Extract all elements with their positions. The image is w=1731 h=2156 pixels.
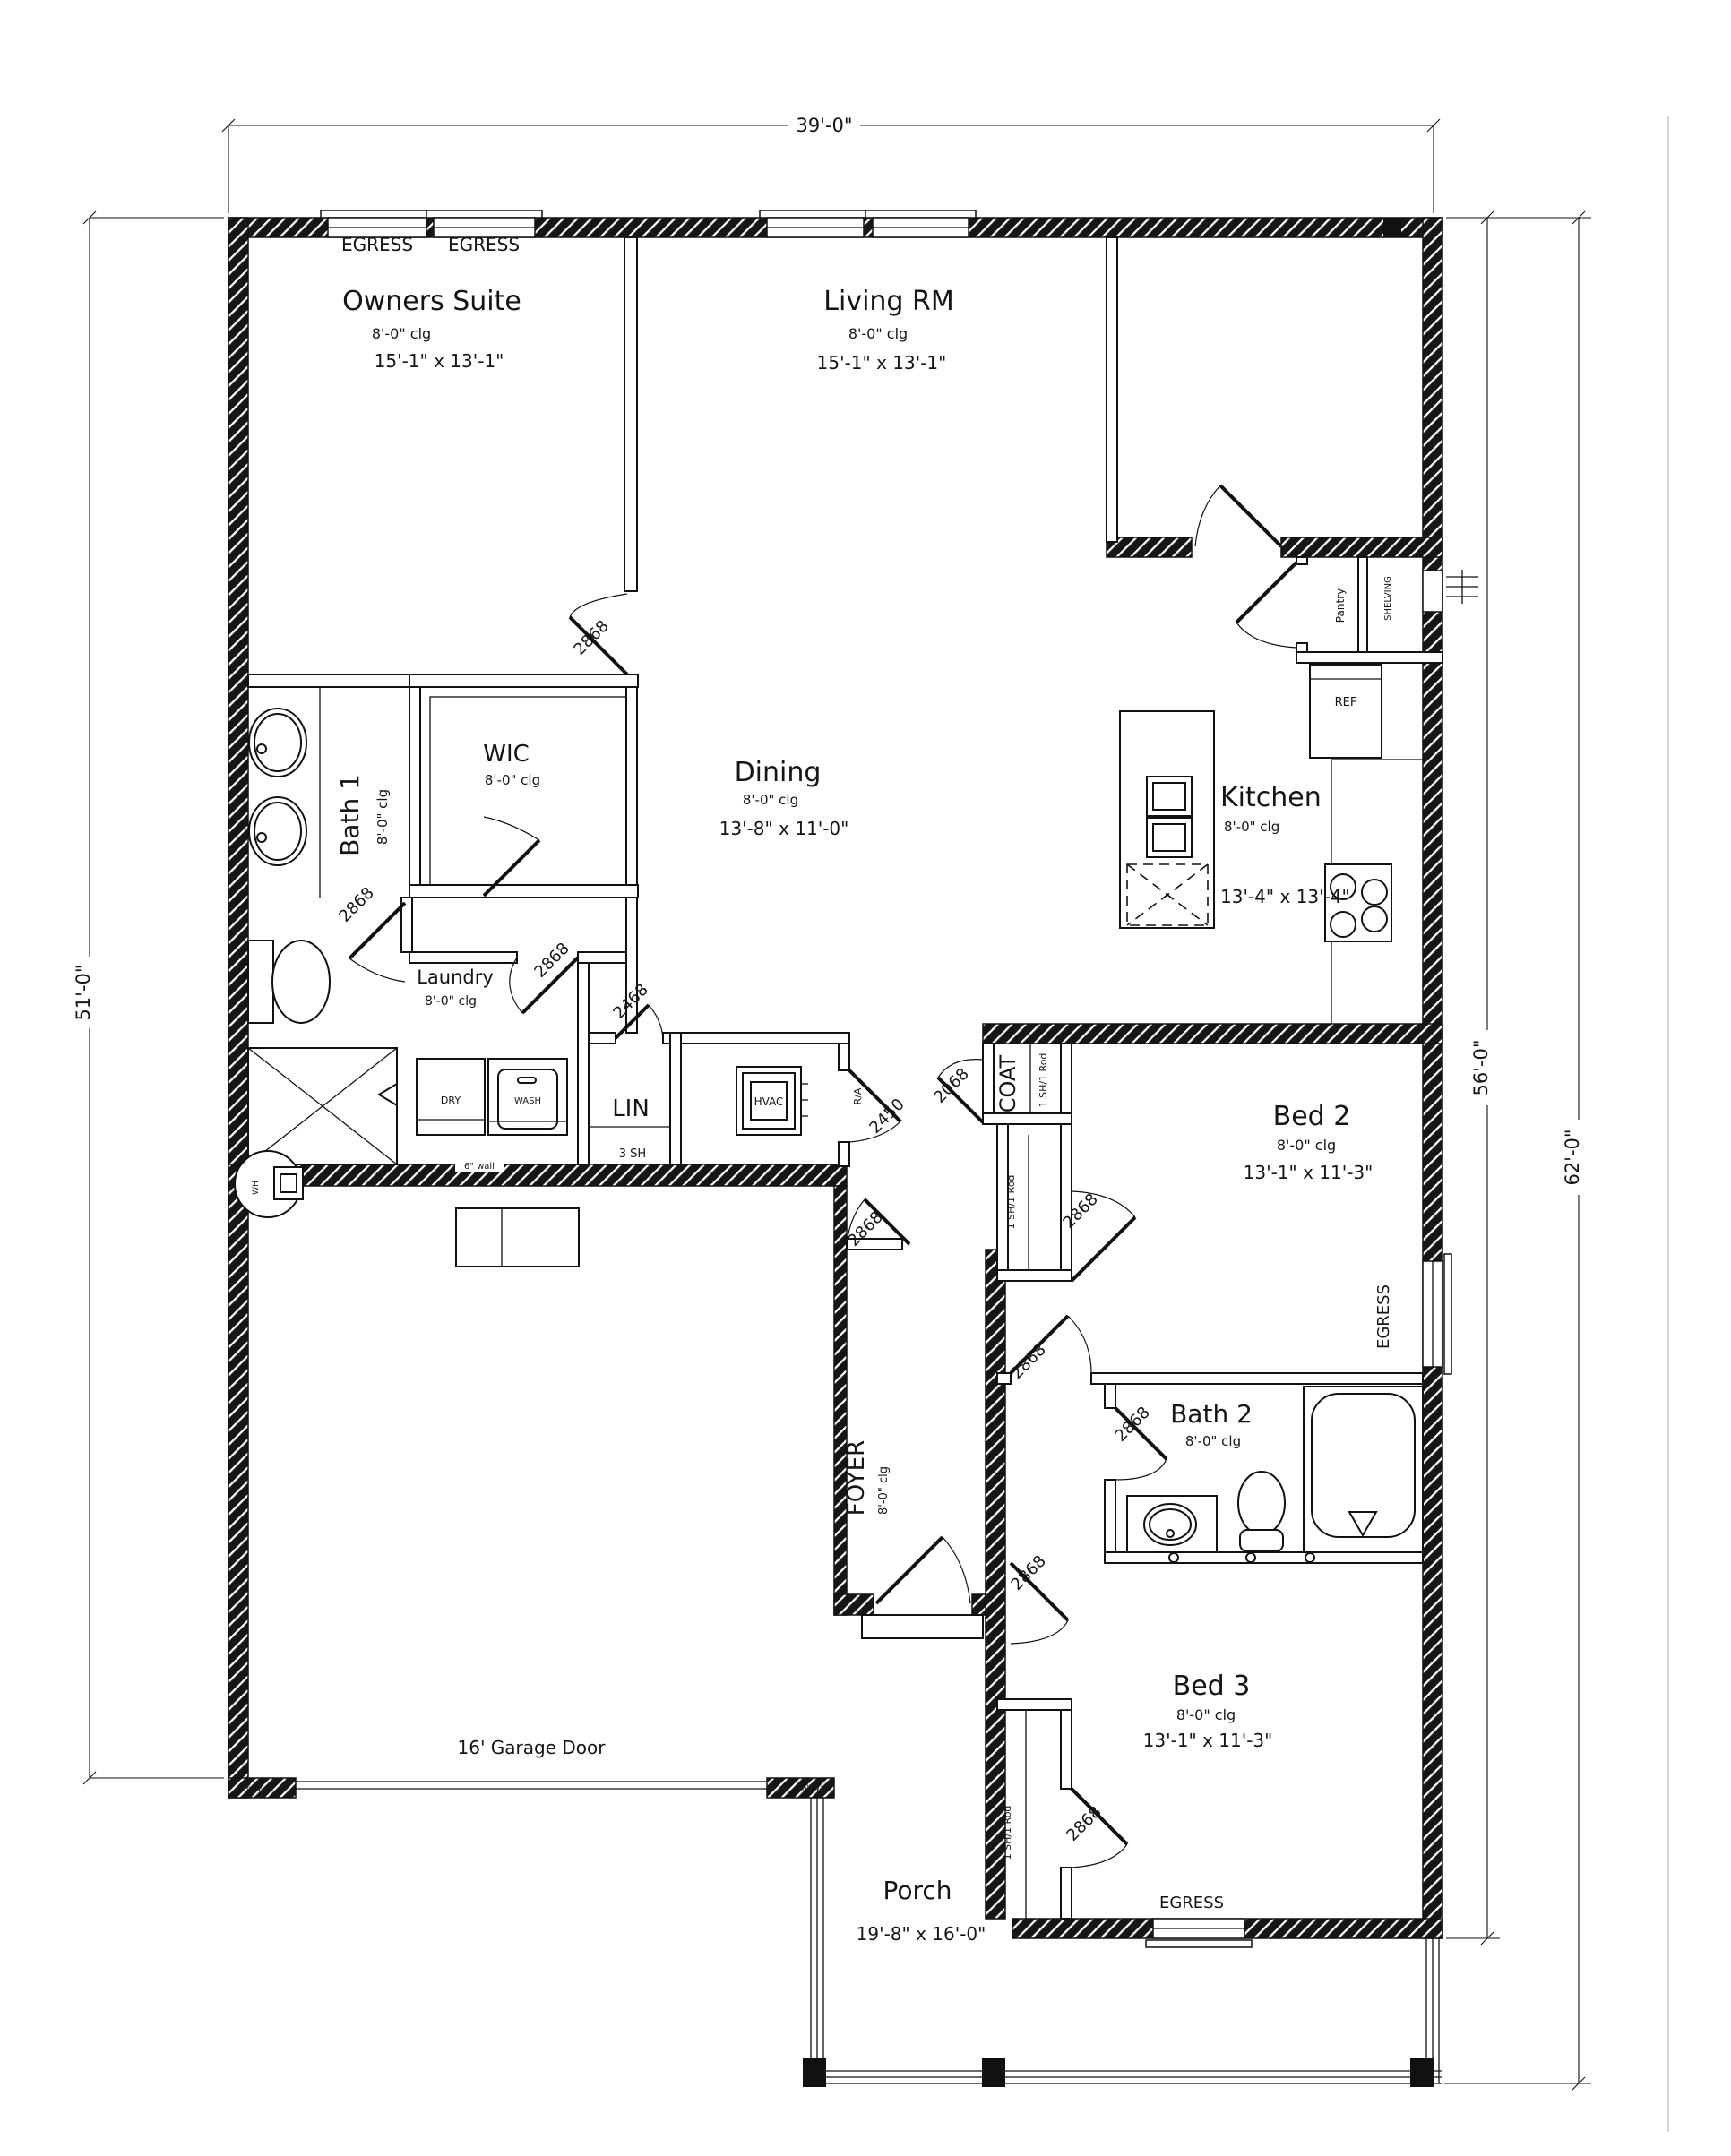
- return-air-label: R/A: [852, 1087, 864, 1104]
- bed2-clg: 8'-0" clg: [1277, 1137, 1336, 1154]
- kitchen-name: Kitchen: [1220, 782, 1322, 813]
- door-2868-hall: 2868: [1007, 1340, 1049, 1382]
- egress-label-2: EGRESS: [448, 234, 520, 255]
- garage-door-label: 16' Garage Door: [458, 1737, 607, 1758]
- foyer-clg: 8'-0" clg: [877, 1466, 891, 1515]
- hvac-name: HVAC: [754, 1095, 784, 1108]
- egress-label-bed3: EGRESS: [1159, 1894, 1224, 1912]
- water-heater-label: WH: [252, 1181, 261, 1195]
- foyer-name: FOYER: [843, 1440, 870, 1516]
- wic-clg: 8'-0" clg: [485, 772, 540, 788]
- coat-rod: 1 SH/1 Rod: [1038, 1053, 1049, 1108]
- egress-label-1: EGRESS: [341, 234, 413, 255]
- dining-size: 13'-8" x 11'-0": [719, 818, 849, 839]
- bed3-size: 13'-1" x 11'-3": [1143, 1730, 1273, 1751]
- lin-shelves: 3 SH: [619, 1147, 646, 1161]
- kitchen-clg: 8'-0" clg: [1224, 819, 1279, 835]
- dim-right-outer: 62'-0": [1562, 1129, 1583, 1185]
- egress-label-bed2: EGRESS: [1374, 1284, 1393, 1349]
- six-wall-left: 6" wall: [246, 1784, 274, 1793]
- living-name: Living RM: [823, 286, 953, 317]
- porch-name: Porch: [883, 1876, 952, 1905]
- wic-name: WIC: [483, 741, 530, 768]
- bath2-clg: 8'-0" clg: [1185, 1433, 1241, 1449]
- bed3-clg: 8'-0" clg: [1176, 1706, 1236, 1723]
- door-2868-laundry: 2868: [530, 939, 573, 981]
- dim-overall-width: 39'-0": [796, 115, 852, 136]
- living-clg: 8'-0" clg: [848, 325, 908, 342]
- lin-name: LIN: [612, 1095, 650, 1122]
- door-2868-bath1: 2868: [335, 883, 377, 925]
- door-2068-coat: 2068: [930, 1064, 972, 1106]
- owners-suite-name: Owners Suite: [342, 286, 521, 317]
- living-size: 15'-1" x 13'-1": [817, 352, 947, 374]
- pantry-label: Pantry: [1334, 588, 1347, 623]
- ref-label: REF: [1335, 696, 1357, 709]
- owners-suite-clg: 8'-0" clg: [372, 325, 431, 342]
- bath1-clg: 8'-0" clg: [375, 789, 391, 845]
- porch-size: 19'-8" x 16'-0": [857, 1923, 986, 1945]
- owners-suite-size: 15'-1" x 13'-1": [375, 350, 504, 372]
- dim-left-height: 51'-0": [73, 964, 94, 1020]
- floor-plan-sheet: 39'-0" 51'-0" 56'-0" 62'-0" EGRESS EGRES…: [0, 0, 1731, 2156]
- bed3-name: Bed 3: [1173, 1671, 1251, 1702]
- six-wall-right: 6" wall: [802, 1784, 830, 1793]
- floor-plan-drawing: 39'-0" 51'-0" 56'-0" 62'-0" EGRESS EGRES…: [0, 0, 1731, 2156]
- dry-label: DRY: [441, 1095, 461, 1106]
- bath1-name: Bath 1: [335, 774, 365, 856]
- dining-name: Dining: [735, 757, 822, 788]
- laundry-name: Laundry: [417, 966, 494, 988]
- door-2868-bed3-closet: 2868: [1063, 1802, 1105, 1844]
- dim-right-inner: 56'-0": [1470, 1039, 1492, 1095]
- laundry-clg: 8'-0" clg: [425, 994, 477, 1009]
- dining-clg: 8'-0" clg: [743, 792, 798, 808]
- shelving-label: SHELVING: [1383, 576, 1393, 621]
- bed2-size: 13'-1" x 11'-3": [1244, 1162, 1374, 1183]
- coat-name: COAT: [995, 1054, 1021, 1112]
- bath1-fixtures: [248, 687, 397, 1164]
- bath2-name: Bath 2: [1170, 1399, 1253, 1429]
- door-2868-bed3-hall: 2868: [1007, 1551, 1049, 1593]
- wash-label: WASH: [514, 1096, 541, 1106]
- bed2-closet-rod: 1 SH/1 Rod: [1005, 1175, 1017, 1230]
- laundry-fixtures: [417, 1059, 567, 1135]
- kitchen-size: 13'-4" x 13'-4": [1220, 886, 1350, 907]
- bed2-name: Bed 2: [1273, 1101, 1351, 1132]
- six-wall-mid: 6" wall: [464, 1162, 495, 1172]
- exterior-walls: [228, 218, 1442, 1938]
- bed3-closet-rod: 1 SH/1 Rod: [1002, 1806, 1013, 1860]
